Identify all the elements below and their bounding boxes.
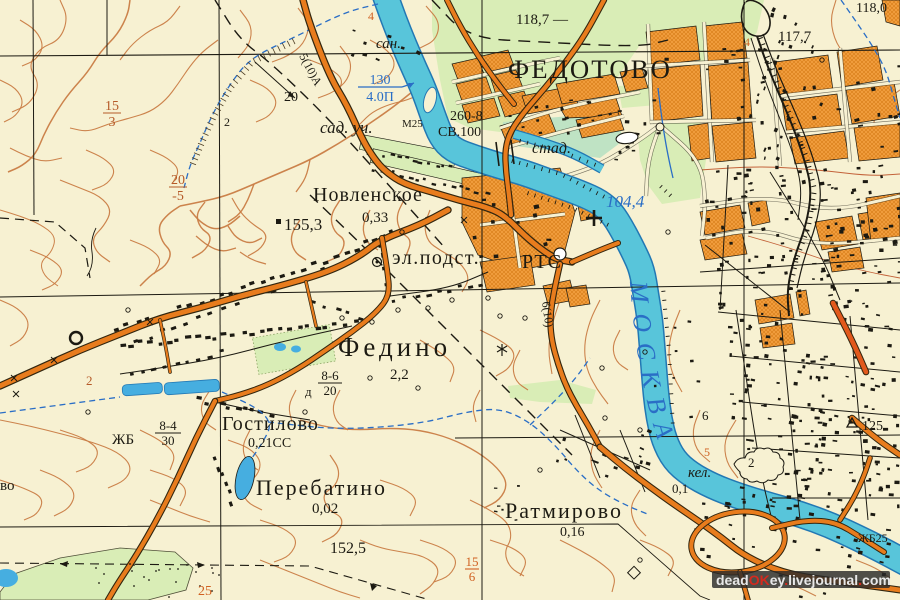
svg-text:Гостилово: Гостилово [222,413,319,435]
svg-text:Новленское: Новленское [313,184,423,206]
svg-text:118,0: 118,0 [856,1,887,16]
svg-text:104,4: 104,4 [606,192,645,211]
svg-text:0,02: 0,02 [312,501,338,517]
svg-text:20: 20 [171,173,185,188]
svg-text:М25: М25 [402,118,423,130]
svg-text:4.0П: 4.0П [366,90,394,105]
svg-text:ЖБ: ЖБ [112,432,134,448]
svg-text:стад.: стад. [532,140,571,157]
svg-text:25: 25 [198,584,212,599]
svg-text:130: 130 [370,73,391,88]
svg-text:20: 20 [284,90,298,105]
svg-text:0,33: 0,33 [362,210,388,226]
svg-text:2: 2 [224,115,230,129]
svg-text:6: 6 [469,569,476,584]
svg-text:ФЕДОТОВО: ФЕДОТОВО [508,55,672,84]
svg-text:2,2: 2,2 [390,367,409,383]
svg-text:Ратмирово: Ратмирово [505,498,623,523]
svg-text:30: 30 [162,433,175,448]
svg-text:117,7: 117,7 [778,29,812,45]
svg-text:0,16: 0,16 [560,525,585,540]
svg-text:сад. уч.: сад. уч. [320,118,373,137]
svg-text:118,7 —: 118,7 — [516,12,569,28]
svg-text:20: 20 [324,383,337,398]
svg-text:кел.: кел. [688,465,711,481]
svg-text:15: 15 [466,554,479,569]
svg-text:д: д [305,384,312,399]
svg-text:во: во [0,478,14,494]
svg-text:2: 2 [748,455,755,470]
svg-text:5: 5 [704,445,710,459]
svg-text:15: 15 [105,99,119,114]
svg-text:сан.: сан. [376,36,401,52]
svg-text:РТС: РТС [522,251,562,273]
svg-text:2: 2 [86,373,93,388]
svg-text:155,3: 155,3 [284,215,322,234]
svg-text:0,1: 0,1 [672,481,688,496]
svg-text:8-6: 8-6 [321,368,339,383]
svg-text:0,21СС: 0,21СС [248,436,291,451]
svg-text:ЖБ25: ЖБ25 [858,531,888,545]
svg-text:-5: -5 [172,189,184,204]
svg-text:Перебатино: Перебатино [256,475,387,500]
svg-text:6: 6 [702,408,709,423]
svg-text:СВ.100: СВ.100 [438,125,481,140]
svg-text:4: 4 [368,9,374,23]
svg-text:эл.подст.: эл.подст. [392,247,480,269]
svg-text:Федино: Федино [338,332,451,362]
svg-text:152,5: 152,5 [330,540,366,557]
svg-text:125: 125 [862,419,883,434]
svg-text:4: 4 [744,35,750,49]
svg-text:8-4: 8-4 [159,418,177,433]
svg-text:260-8: 260-8 [450,109,483,124]
svg-text:deadOKey.livejournal.com: deadOKey.livejournal.com [716,572,891,588]
svg-text:3: 3 [109,115,116,130]
